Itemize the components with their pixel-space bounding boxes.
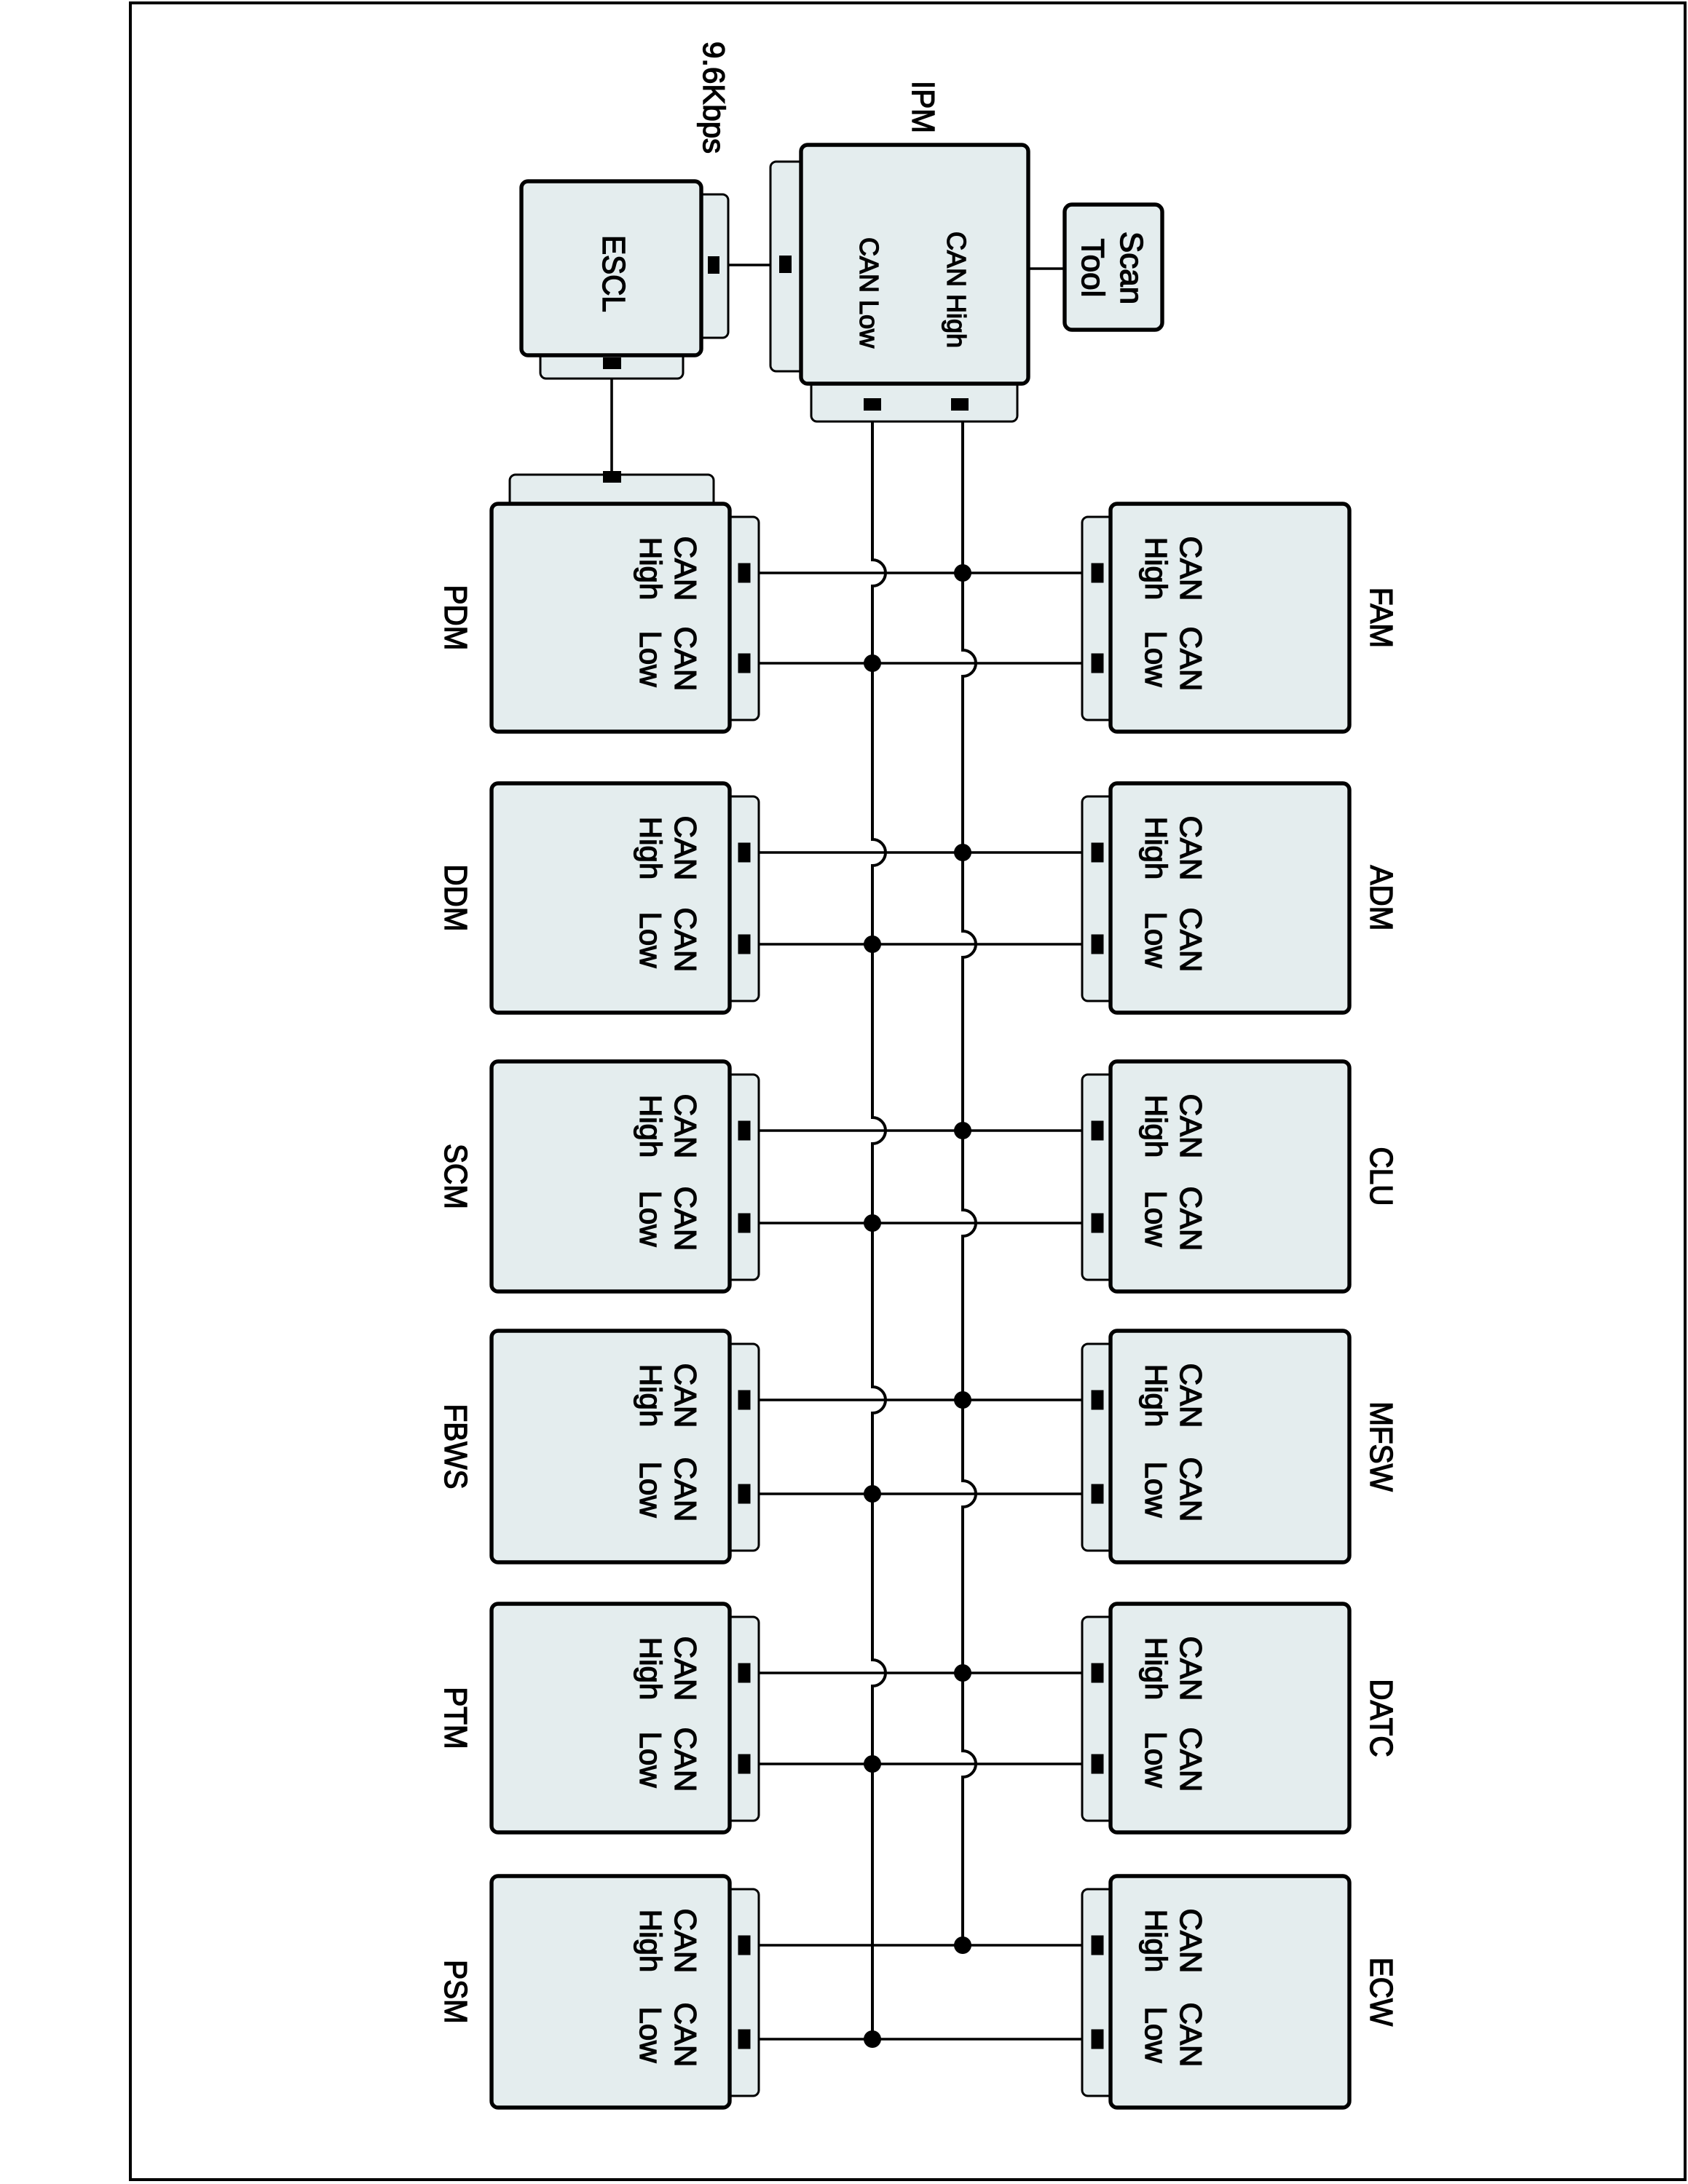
svg-text:Low: Low [634,1190,668,1247]
svg-text:High: High [634,1637,668,1700]
svg-text:SCM: SCM [438,1144,474,1209]
svg-text:CAN: CAN [1174,1187,1208,1251]
svg-text:Low: Low [634,630,668,687]
svg-text:CAN: CAN [669,1364,703,1428]
svg-text:CAN: CAN [1174,1728,1208,1792]
svg-text:DDM: DDM [438,864,474,931]
svg-text:High: High [634,537,668,600]
svg-text:CAN: CAN [669,627,703,692]
svg-text:CAN: CAN [1174,2003,1208,2068]
svg-text:ADM: ADM [1364,866,1400,931]
svg-text:High: High [1139,817,1173,879]
svg-text:CAN: CAN [1174,908,1208,973]
svg-text:PTM: PTM [438,1687,474,1749]
svg-text:CAN: CAN [669,816,703,881]
svg-text:Low: Low [634,911,668,968]
svg-text:MFSW: MFSW [1364,1401,1400,1492]
svg-text:Low: Low [1139,911,1173,968]
svg-text:ESCL: ESCL [596,235,632,312]
svg-text:High: High [1139,1910,1173,1972]
svg-text:PDM: PDM [438,585,474,651]
svg-text:High: High [1139,1637,1173,1700]
svg-text:Low: Low [1139,1190,1173,1247]
svg-text:CAN: CAN [669,1457,703,1522]
svg-text:DATC: DATC [1364,1679,1400,1757]
svg-text:FBWS: FBWS [438,1404,474,1489]
svg-text:High: High [634,1910,668,1972]
svg-text:High: High [634,1095,668,1158]
svg-text:ECW: ECW [1364,1958,1400,2027]
svg-text:High: High [634,817,668,879]
svg-text:CAN: CAN [669,908,703,973]
svg-text:CLU: CLU [1364,1147,1400,1206]
svg-text:PSM: PSM [438,1960,474,2024]
svg-text:CAN: CAN [1174,816,1208,881]
svg-text:CAN: CAN [1174,627,1208,692]
svg-text:CAN: CAN [669,1094,703,1159]
svg-text:CAN: CAN [669,1187,703,1251]
svg-text:High: High [1139,1095,1173,1158]
svg-text:Low: Low [1139,2006,1173,2063]
svg-text:CAN: CAN [669,537,703,601]
svg-text:Low: Low [1139,1731,1173,1788]
svg-text:CAN: CAN [1174,1637,1208,1701]
svg-text:Low: Low [1139,630,1173,687]
svg-text:CAN Low: CAN Low [854,237,884,349]
svg-text:CAN: CAN [669,1909,703,1974]
svg-text:9.6Kbps: 9.6Kbps [697,41,731,154]
svg-text:Low: Low [1139,1461,1173,1518]
svg-text:High: High [634,1364,668,1427]
svg-text:Scan: Scan [1113,232,1149,304]
svg-text:CAN: CAN [669,1728,703,1792]
svg-text:CAN: CAN [1174,1094,1208,1159]
svg-text:CAN: CAN [1174,1909,1208,1974]
svg-text:CAN: CAN [669,2003,703,2068]
svg-text:High: High [1139,537,1173,600]
svg-text:CAN: CAN [669,1637,703,1701]
svg-text:Low: Low [634,1731,668,1788]
svg-text:CAN: CAN [1174,1364,1208,1428]
svg-text:High: High [1139,1364,1173,1427]
svg-text:CAN: CAN [1174,1457,1208,1522]
svg-text:CAN High: CAN High [942,232,971,348]
svg-text:FAM: FAM [1364,587,1400,648]
svg-text:Low: Low [634,2006,668,2063]
svg-text:IPM: IPM [906,81,942,133]
svg-text:CAN: CAN [1174,537,1208,601]
svg-text:Tool: Tool [1075,239,1111,298]
svg-text:Low: Low [634,1461,668,1518]
